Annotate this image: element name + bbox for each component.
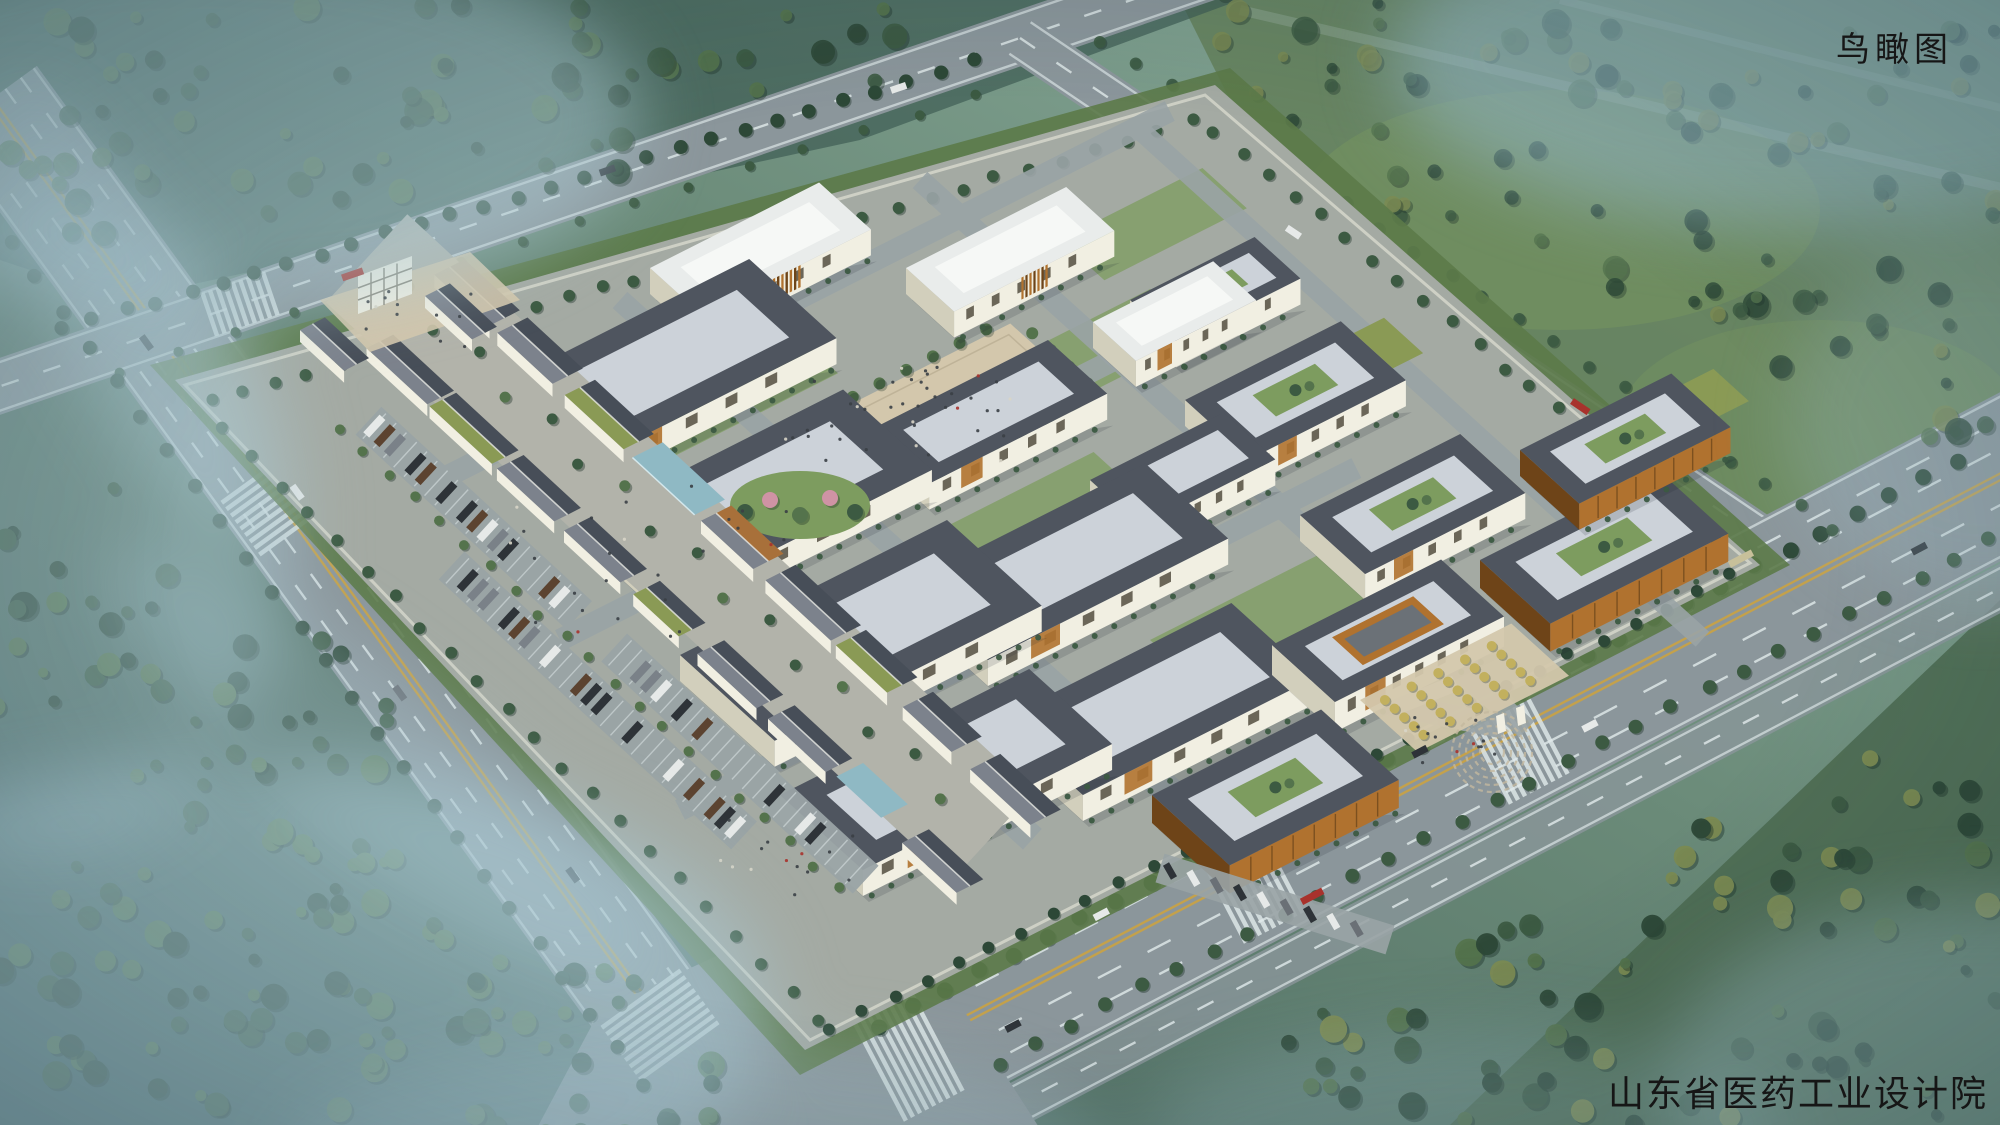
aerial-rendering-stage: 鸟瞰图 山东省医药工业设计院 xyxy=(0,0,2000,1125)
view-title-label: 鸟瞰图 xyxy=(1836,22,1953,71)
aerial-rendering-canvas xyxy=(0,0,2000,1125)
design-institute-credit-label: 山东省医药工业设计院 xyxy=(1608,1065,1988,1117)
